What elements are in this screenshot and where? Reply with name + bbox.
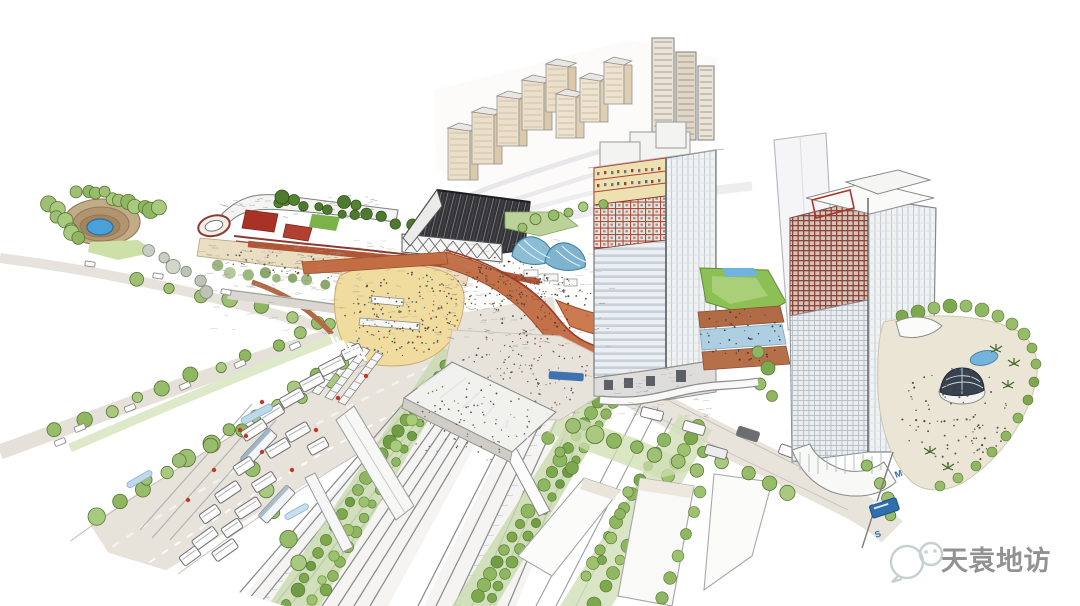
svg-text:天袁地访: 天袁地访 <box>941 546 1051 576</box>
